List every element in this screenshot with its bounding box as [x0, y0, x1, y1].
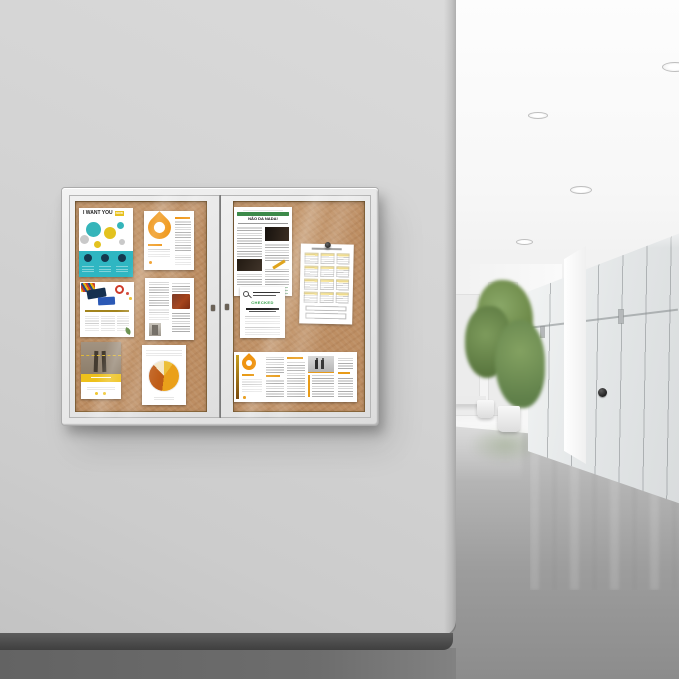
lock-icon[interactable]: [225, 304, 229, 310]
mini-month: [320, 266, 334, 277]
drop-logo-icon: [144, 211, 176, 244]
text-lines: [237, 227, 262, 257]
door-divider: [219, 195, 221, 418]
dot: [95, 392, 98, 395]
ceiling-light: [570, 186, 592, 194]
potted-plants: [465, 280, 550, 436]
text-lines: [266, 379, 284, 397]
product-photo-scene: I WANT YOU NOW: [0, 0, 679, 679]
building-illustration: [149, 323, 161, 336]
text-lines: [242, 378, 262, 392]
dot: [129, 297, 132, 300]
mini-month: [304, 292, 318, 303]
poster-title: I WANT YOU: [83, 211, 113, 216]
poster-footer-band: [79, 251, 133, 277]
bold-line: [246, 308, 279, 310]
poster-drop-flyer: [144, 211, 194, 270]
text-lines: [338, 357, 353, 369]
poster-brochure: [234, 352, 357, 402]
lock-icon[interactable]: [211, 305, 215, 311]
poster-two-column-report: [145, 278, 194, 340]
bold-line: [253, 292, 280, 293]
ring-graphic: [115, 285, 124, 294]
wall-pier: [564, 246, 586, 464]
dot: [103, 392, 106, 395]
text-lines: [245, 327, 280, 335]
text-lines: [245, 316, 280, 324]
text-lines: [82, 265, 94, 272]
ceiling-light: [662, 62, 679, 72]
mini-month: [304, 266, 318, 277]
text-lines: [99, 265, 111, 272]
poster-want-you: I WANT YOU NOW: [79, 208, 133, 277]
poster-checked-notice: CHECKED: [240, 287, 285, 338]
divider-line: [238, 223, 288, 224]
text-lines: [149, 282, 169, 306]
bubble: [119, 239, 125, 245]
text-lines: [149, 309, 169, 320]
photo-block: [172, 294, 190, 309]
footer-icon: [84, 254, 92, 262]
text-lines: [338, 376, 353, 397]
leaf-icon: [124, 327, 132, 335]
heading-line: [266, 375, 280, 377]
mini-month: [304, 279, 318, 290]
photo-block: [265, 227, 289, 241]
push-pin-icon: [325, 242, 331, 248]
text-lines: [237, 273, 262, 285]
enclosed-bulletin-board: I WANT YOU NOW: [62, 188, 378, 425]
footer-icon: [118, 254, 126, 262]
dot: [126, 292, 129, 295]
yellow-band: [81, 374, 121, 382]
plant-foliage: [495, 320, 545, 408]
text-lines: [172, 312, 190, 332]
poster-legs-flyer: [81, 342, 121, 399]
text-lines: [265, 243, 289, 261]
text-lines: [148, 248, 170, 257]
masthead-band: [237, 212, 289, 216]
text-lines: [146, 349, 182, 356]
door-latch: [619, 310, 623, 323]
status-text: CHECKED: [240, 301, 285, 305]
bubble: [94, 241, 101, 248]
plant-pot: [498, 406, 520, 432]
heading-line: [338, 372, 350, 374]
text-lines: [85, 315, 99, 331]
text-lines: [154, 396, 174, 400]
plant-pot: [477, 400, 494, 418]
summary-row: [305, 306, 346, 312]
poster-badge: NOW: [115, 211, 124, 216]
door-handle-icon: [598, 388, 607, 397]
mini-month: [320, 279, 334, 290]
pencil-icon: [272, 260, 285, 270]
heading-line: [242, 374, 254, 376]
mini-month: [320, 253, 334, 264]
text-lines: [172, 282, 190, 292]
hallway: [440, 0, 679, 679]
card-graphic: [98, 297, 115, 306]
mini-month: [336, 279, 349, 290]
text-lines: [243, 209, 283, 211]
text-lines: [312, 375, 334, 397]
photo-block: [237, 259, 262, 271]
text-lines: [265, 269, 289, 285]
bold-line: [249, 311, 276, 312]
bubble: [117, 222, 124, 229]
footer-icon: [101, 254, 109, 262]
text-lines: [175, 221, 191, 251]
pie-chart: [149, 361, 179, 391]
bold-line: [253, 295, 276, 296]
ceiling-light: [528, 112, 548, 119]
poster-newsletter: NÃO DA NADA!: [234, 207, 292, 296]
photo-strip: [236, 355, 239, 399]
poster-calendar: [299, 243, 354, 324]
poster-cards-flyer: [80, 282, 134, 337]
mini-month: [336, 253, 349, 264]
bubble: [80, 235, 89, 244]
poster-pie-report: [142, 345, 186, 405]
bubble: [104, 227, 116, 239]
magnifier-handle: [248, 295, 252, 299]
heading-line: [287, 357, 303, 359]
newsletter-headline: NÃO DA NADA!: [234, 217, 292, 221]
text-lines: [87, 385, 115, 390]
dot: [149, 261, 152, 264]
heading-line: [148, 244, 162, 246]
mini-month: [336, 266, 349, 277]
mini-month: [320, 292, 334, 303]
baseboard: [0, 633, 453, 650]
summary-row: [305, 313, 346, 320]
text-lines: [175, 255, 191, 265]
dot: [243, 396, 246, 399]
sepia-photo: [81, 342, 121, 374]
ceiling-light: [516, 239, 533, 245]
text-lines: [101, 315, 115, 331]
bubble: [86, 222, 101, 237]
heading-line: [85, 310, 129, 312]
text-lines: [266, 357, 284, 373]
mini-month: [336, 292, 349, 303]
text-lines: [116, 265, 128, 272]
foreground-floor: [0, 648, 456, 679]
heading-line: [175, 217, 190, 219]
bw-photo: [308, 356, 334, 373]
mini-month: [304, 253, 318, 264]
accent-bar: [308, 375, 310, 397]
drop-logo-icon: [239, 353, 259, 373]
text-lines: [287, 361, 305, 397]
